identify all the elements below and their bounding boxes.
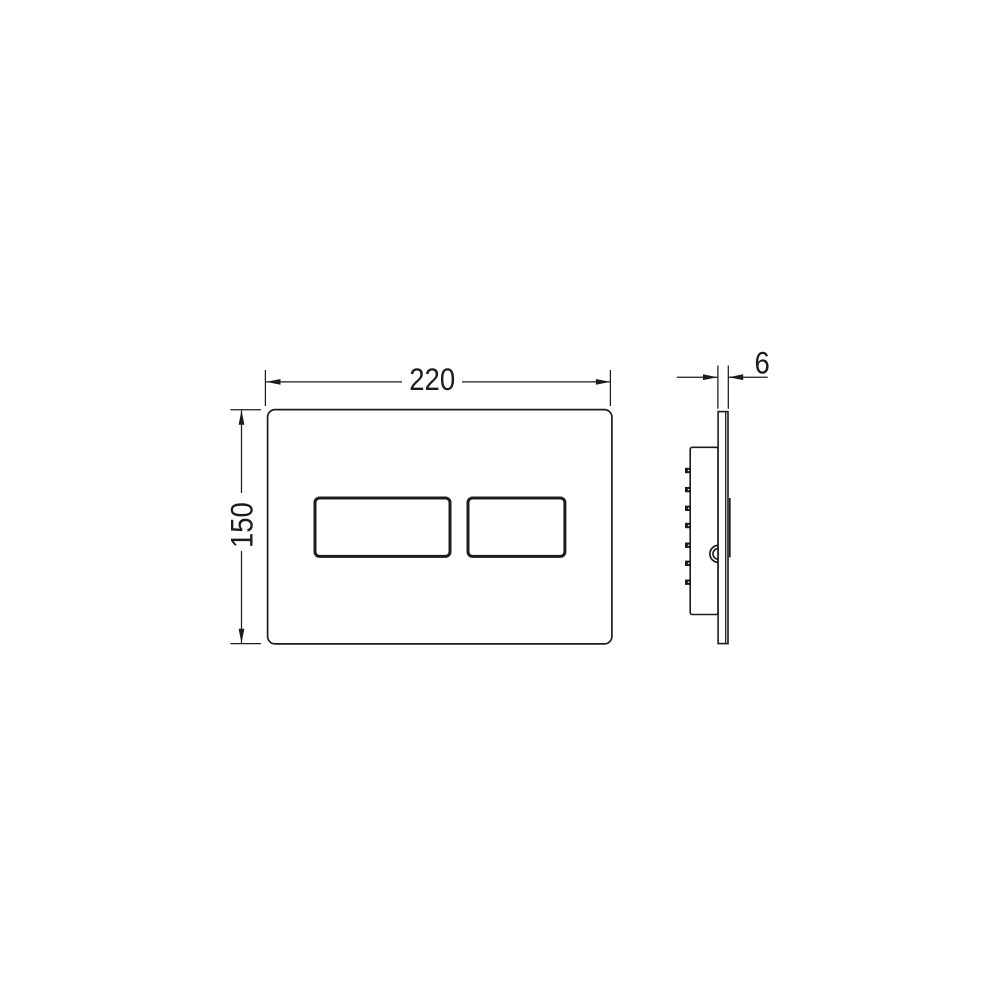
svg-text:220: 220 [409, 362, 455, 397]
svg-text:6: 6 [754, 346, 769, 381]
svg-text:150: 150 [225, 502, 260, 548]
